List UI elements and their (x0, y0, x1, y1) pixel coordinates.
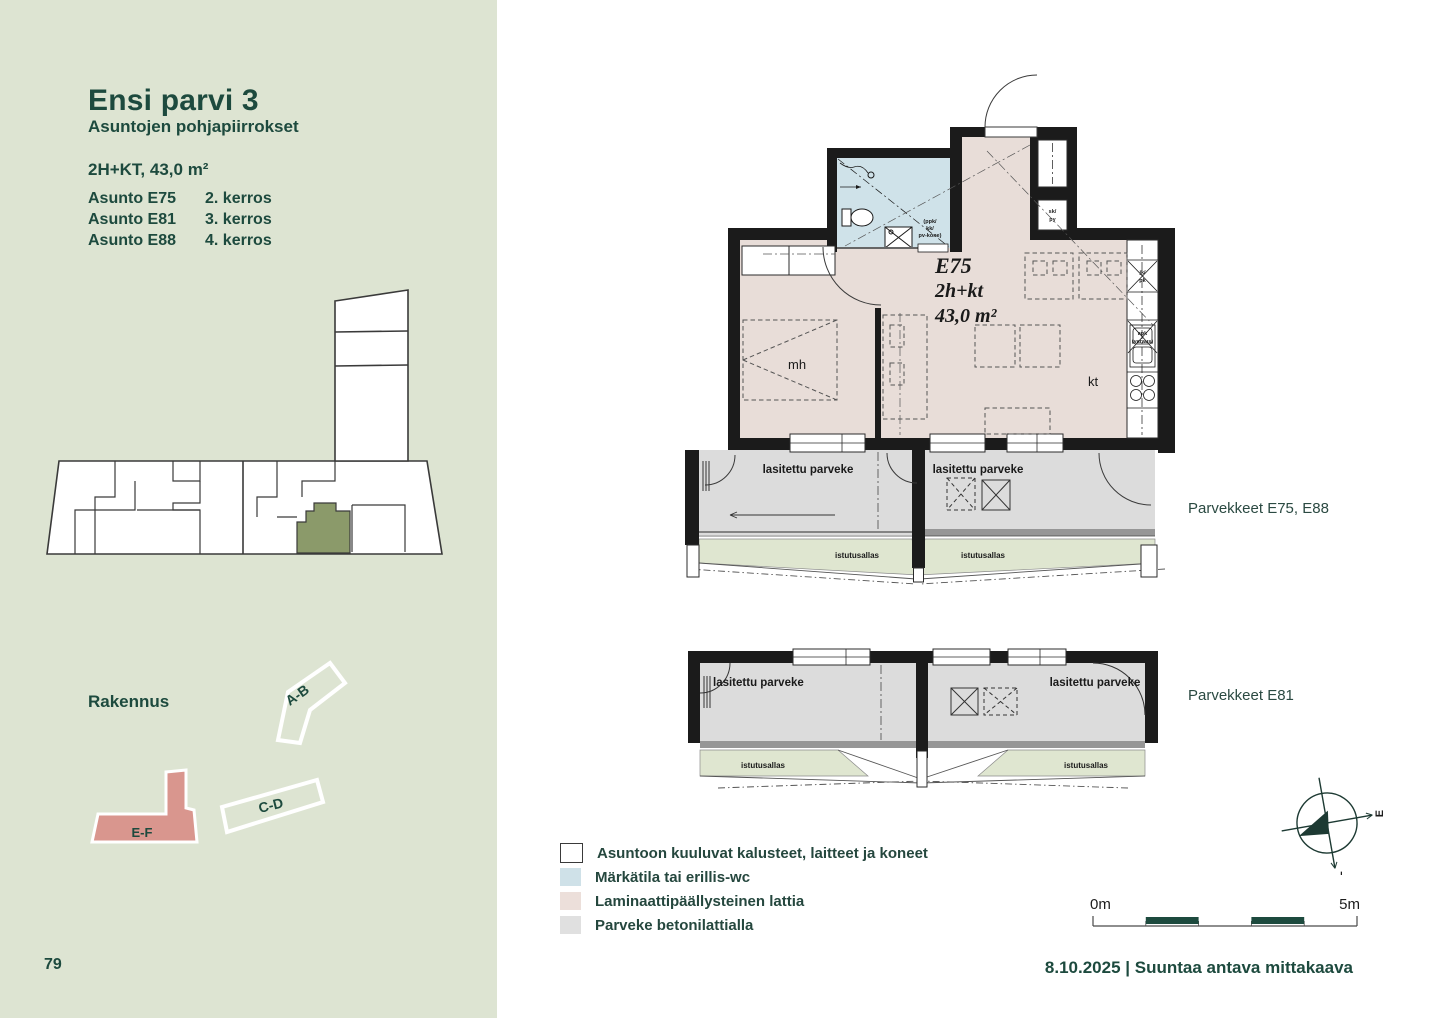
balcony-floor-right (925, 450, 1155, 535)
compass-letter-left: P (1277, 829, 1280, 836)
apartment-floor: 3. kerros (205, 209, 272, 230)
caption-balconies-top: Parvekkeet E75, E88 (1188, 500, 1329, 517)
bathroom-sliding-door (918, 244, 948, 252)
toilet-tank (842, 209, 851, 226)
balcony-plan-e81: lasitettu parveke lasitettu parveke istu… (688, 648, 1158, 793)
dishwasher-label-1: apk (1138, 331, 1148, 337)
apartment-row: Asunto E81 3. kerros (88, 209, 388, 230)
kitchen-label: kt (1088, 374, 1099, 389)
fridge-label-2: pk (1139, 278, 1146, 284)
glazed-balcony-label: lasitettu parveke (763, 464, 854, 476)
dishwasher-label-2: (varaus) (1132, 339, 1154, 345)
building-ef-label: E-F (132, 825, 153, 840)
compass-letter-right: E (1374, 810, 1386, 817)
glazed-balcony-label: lasitettu parveke (1050, 677, 1141, 689)
floor-plan-e75: E75 2h+kt 43,0 m² mh kt sk/ py jk/ pk ap… (685, 63, 1185, 588)
balcony-pier-left (687, 545, 699, 577)
laundry-label-1: (ppk/ (923, 219, 937, 225)
scale-segment (1251, 917, 1304, 924)
scale-start-label: 0m (1090, 896, 1111, 913)
glazed-balcony-label: lasitettu parveke (713, 677, 804, 689)
legend-item: Märkätila tai erillis-wc (560, 865, 928, 889)
scale-bar: 0m 5m (1085, 893, 1365, 935)
apartment-name: Asunto E81 (88, 209, 205, 230)
balcony-pier-right (1141, 545, 1157, 577)
unit-summary: 2H+KT, 43,0 m² (88, 160, 208, 180)
wardrobe-left (742, 246, 789, 275)
legend-label: Märkätila tai erillis-wc (595, 869, 750, 886)
site-section-drawing (40, 285, 460, 565)
apartment-floor: 4. kerros (205, 230, 272, 251)
entry-door-leaf (985, 127, 1037, 137)
page-title: Ensi parvi 3 (88, 84, 259, 118)
planter-label: istutusallas (835, 551, 880, 560)
scale-end-label: 5m (1339, 896, 1360, 913)
apartment-name: Asunto E88 (88, 230, 205, 251)
unit-type-label: 2h+kt (934, 280, 985, 302)
page-number: 79 (44, 956, 62, 974)
balcony-pillar-center (917, 751, 927, 787)
legend-swatch-laminate (560, 892, 581, 910)
legend-swatch-balcony (560, 916, 581, 934)
laundry-label-2: kk/ (926, 226, 934, 232)
unit-area-label: 43,0 m² (934, 305, 998, 327)
planter-bands (699, 539, 1155, 575)
legend-label: Asuntoon kuuluvat kalusteet, laitteet ja… (597, 845, 928, 862)
legend-item: Laminaattipäällysteinen lattia (560, 889, 928, 913)
caption-balconies-bottom: Parvekkeet E81 (1188, 687, 1294, 704)
laundry-label-3: pv-kone) (919, 233, 942, 239)
legend-swatch-fixtures (560, 843, 583, 863)
legend-label: Laminaattipäällysteinen lattia (595, 893, 804, 910)
closet-label-1: sk/ (1049, 209, 1057, 215)
toilet-bowl (851, 209, 873, 226)
apartment-row: Asunto E88 4. kerros (88, 230, 388, 251)
apartment-list: Asunto E75 2. kerros Asunto E81 3. kerro… (88, 188, 388, 251)
sidebar-panel: Ensi parvi 3 Asuntojen pohjapiirrokset 2… (0, 0, 497, 1018)
planter-label: istutusallas (961, 551, 1006, 560)
planter-label: istutusallas (1064, 761, 1109, 770)
site-outline (47, 290, 442, 554)
closet-sk-py (1038, 200, 1067, 230)
fridge-label-1: jk/ (1138, 270, 1146, 276)
footer-date-scale-note: 8.10.2025 | Suuntaa antava mittakaava (1045, 958, 1353, 978)
legend-swatch-wet-room (560, 868, 581, 886)
balcony-floor-left (699, 450, 912, 535)
north-pointer (1295, 811, 1331, 839)
balcony-pillar-center (914, 568, 924, 582)
scale-line (1093, 916, 1357, 926)
compass-rose: I E L P (1277, 775, 1387, 875)
legend-item: Asuntoon kuuluvat kalusteet, laitteet ja… (560, 841, 928, 865)
apartment-name: Asunto E75 (88, 188, 205, 209)
compass-letter-bottom: L (1333, 871, 1345, 875)
glazed-balcony-label: lasitettu parveke (933, 464, 1024, 476)
apartment-row: Asunto E75 2. kerros (88, 188, 388, 209)
legend-item: Parveke betonilattialla (560, 913, 928, 937)
building-key-drawing: A-B C-D E-F (60, 655, 360, 855)
scale-segment (1146, 917, 1199, 924)
bedroom-label: mh (788, 357, 806, 372)
legend-label: Parveke betonilattialla (595, 917, 753, 934)
unit-id-label: E75 (934, 253, 972, 278)
page-subtitle: Asuntojen pohjapiirrokset (88, 117, 299, 137)
planter-label: istutusallas (741, 761, 786, 770)
apartment-floor: 2. kerros (205, 188, 272, 209)
legend: Asuntoon kuuluvat kalusteet, laitteet ja… (560, 841, 928, 937)
entry-door-swing (985, 75, 1037, 127)
closet-label-2: py (1049, 217, 1056, 223)
